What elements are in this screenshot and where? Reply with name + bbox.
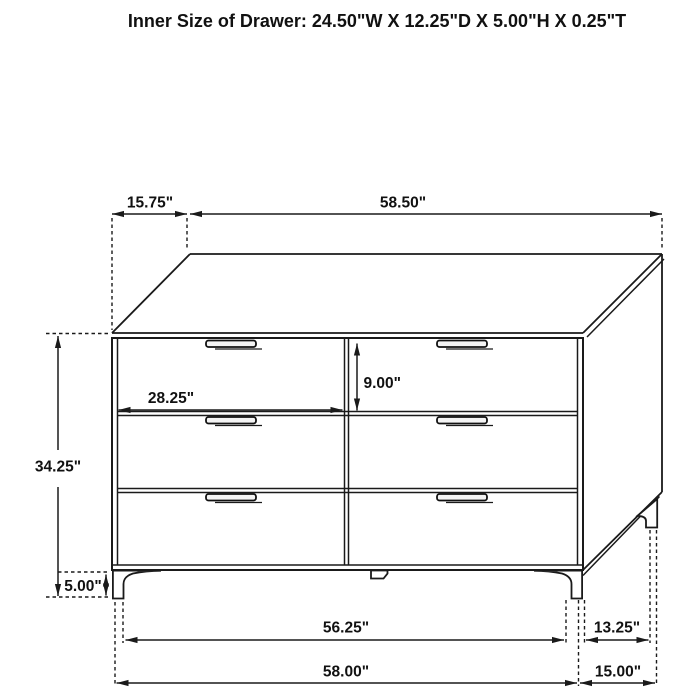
dimension-leg-height: 5.00" bbox=[58, 572, 110, 596]
top-left-edge bbox=[112, 254, 190, 333]
dimension-label-top-width: 58.50" bbox=[380, 195, 426, 212]
dimension-overall-height: 34.25" bbox=[35, 334, 111, 598]
dresser bbox=[112, 254, 664, 599]
drawer-handle bbox=[206, 494, 256, 501]
dimension-label-footprint-width: 58.00" bbox=[323, 664, 369, 681]
top-right-edge bbox=[583, 254, 662, 333]
dresser-front-face bbox=[112, 338, 583, 570]
drawer-handle bbox=[206, 417, 256, 424]
rear-right-leg bbox=[638, 499, 658, 528]
dimension-label-footprint-inner-depth: 13.25" bbox=[594, 620, 640, 637]
top-right-edge-inner bbox=[587, 259, 664, 337]
dimension-footprint-depth: 15.00" bbox=[580, 530, 657, 686]
center-foot bbox=[371, 571, 388, 579]
dimension-footprint-width: 58.00" bbox=[115, 600, 579, 686]
dimension-label-drawer-width: 28.25" bbox=[148, 390, 194, 407]
dimension-label-drawer-height: 9.00" bbox=[364, 375, 402, 392]
drawer-handle bbox=[437, 341, 487, 348]
dimension-footprint-inner-depth: 13.25" bbox=[585, 530, 651, 643]
front-right-leg bbox=[534, 571, 582, 599]
drawer-handle bbox=[206, 341, 256, 348]
dimension-label-leg-height: 5.00" bbox=[64, 578, 102, 595]
drawer-handle bbox=[437, 494, 487, 501]
dimension-label-footprint-inner-width: 56.25" bbox=[323, 620, 369, 637]
dimension-footprint-inner-width: 56.25" bbox=[123, 600, 566, 643]
dimension-top-width: 58.50" bbox=[190, 195, 662, 251]
dimension-diagram: Inner Size of Drawer: 24.50"W X 12.25"D … bbox=[0, 0, 700, 700]
dimension-label-overall-height: 34.25" bbox=[35, 459, 81, 476]
front-face-outline bbox=[112, 338, 583, 570]
dimension-label-footprint-depth: 15.00" bbox=[595, 664, 641, 681]
dimension-back-offset: 15.75" bbox=[112, 195, 187, 331]
dresser-top bbox=[112, 254, 664, 337]
dimension-label-back-offset: 15.75" bbox=[127, 195, 173, 212]
front-left-leg bbox=[113, 571, 161, 599]
diagram-title: Inner Size of Drawer: 24.50"W X 12.25"D … bbox=[128, 11, 626, 31]
drawer-handle bbox=[437, 417, 487, 424]
